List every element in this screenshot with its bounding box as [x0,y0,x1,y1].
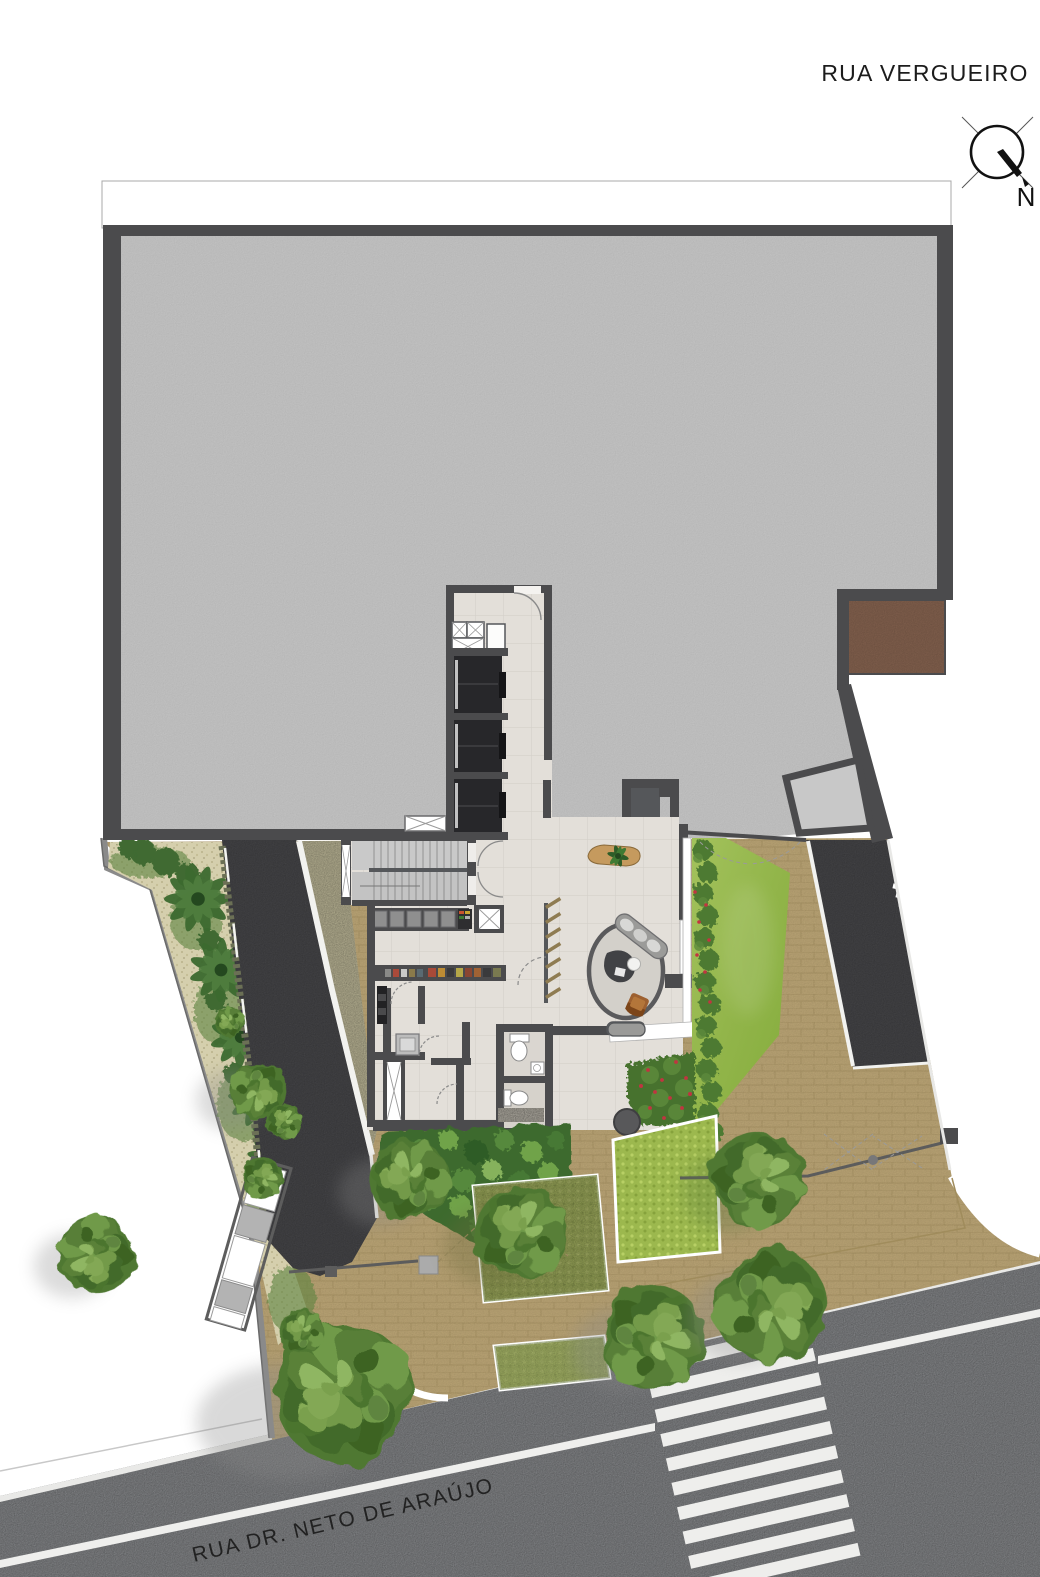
svg-text:RUA VERGUEIRO: RUA VERGUEIRO [821,60,1028,86]
svg-text:N: N [1017,182,1036,212]
